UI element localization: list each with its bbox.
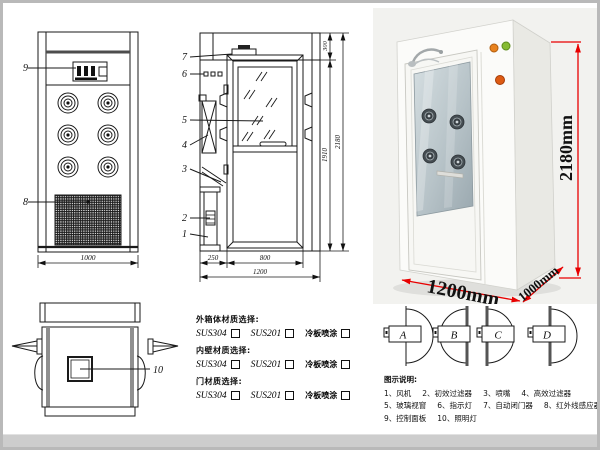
- legend-item: 10、照明灯: [437, 413, 477, 426]
- page-bottom-bar: [0, 434, 600, 450]
- glass-hatching: [242, 72, 277, 141]
- checkbox[interactable]: [341, 360, 350, 369]
- checkbox[interactable]: [231, 360, 240, 369]
- legend-item: 1、风机: [384, 388, 411, 401]
- door-option-b[interactable]: B: [433, 306, 470, 366]
- svg-text:D: D: [542, 330, 551, 342]
- top-body-outline: [42, 327, 138, 407]
- material-group-title: 外箱体材质选择:: [196, 314, 374, 325]
- product-photo: 2180mm 1200mm 1000mm: [373, 8, 597, 304]
- material-option-label: SUS304: [196, 329, 227, 339]
- checkbox[interactable]: [285, 329, 294, 338]
- legend-row: 5、玻璃视窗 6、指示灯 7、自动闭门器 8、红外线感应器: [384, 400, 596, 413]
- material-option-label: SUS304: [196, 360, 227, 370]
- legend-item: 8、红外线感应器: [544, 400, 600, 413]
- svg-text:2180: 2180: [334, 135, 342, 150]
- legend-item: 7、自动闭门器: [483, 400, 533, 413]
- svg-text:1200: 1200: [253, 268, 268, 276]
- door-handle: [260, 142, 286, 146]
- svg-text:B: B: [451, 330, 458, 342]
- door-swing-options: A B C D: [383, 303, 595, 369]
- svg-text:2: 2: [182, 213, 187, 224]
- svg-text:1000: 1000: [81, 253, 96, 262]
- photo-illustration: 2180mm 1200mm 1000mm: [373, 8, 597, 304]
- checkbox[interactable]: [285, 391, 294, 400]
- front-nozzles: [58, 93, 118, 177]
- material-option-label: SUS201: [251, 360, 282, 370]
- svg-text:3: 3: [181, 164, 187, 175]
- legend-item: 4、高效过滤器: [521, 388, 571, 401]
- material-option-label: SUS304: [196, 391, 227, 401]
- checkbox[interactable]: [285, 360, 294, 369]
- air-chute: [202, 167, 226, 186]
- material-group: 门材质选择: SUS304 SUS201 冷板喷涂: [196, 376, 374, 401]
- material-option-label: 冷板喷涂: [305, 328, 337, 339]
- checkbox[interactable]: [341, 329, 350, 338]
- door-option-d[interactable]: D: [528, 306, 577, 366]
- indicator-lights: [204, 72, 222, 76]
- hepa-filter-box: [199, 95, 216, 153]
- material-option-label: 冷板喷涂: [305, 359, 337, 370]
- side-view-drawing: 7 6 5 4 3 2 1 300 1910 2180: [168, 15, 363, 293]
- legend: 图示说明: 1、风机 2、初效过滤器 3、喷嘴 4、高效过滤器 5、玻璃视窗 6…: [384, 374, 596, 425]
- material-group: 内壁材质选择: SUS304 SUS201 冷板喷涂: [196, 345, 374, 370]
- svg-text:10: 10: [153, 365, 163, 376]
- material-option-label: 冷板喷涂: [305, 390, 337, 401]
- svg-text:4: 4: [182, 140, 187, 151]
- front-view-drawing: 9 8 1000: [15, 15, 165, 273]
- door-closer: [232, 49, 256, 55]
- air-shower-spec-sheet: 9 8 1000: [0, 0, 600, 450]
- control-panel: [73, 62, 107, 81]
- svg-text:9: 9: [23, 63, 28, 74]
- door-option-a[interactable]: A: [384, 306, 433, 366]
- legend-item: 3、喷嘴: [483, 388, 510, 401]
- checkbox[interactable]: [341, 391, 350, 400]
- front-width-dimension: 1000: [38, 253, 138, 268]
- material-option-label: SUS201: [251, 329, 282, 339]
- door-option-c[interactable]: C: [477, 306, 514, 366]
- side-cabinet-outline: [200, 33, 320, 251]
- svg-text:1910: 1910: [321, 148, 329, 163]
- svg-text:7: 7: [182, 52, 188, 63]
- material-selection: 外箱体材质选择: SUS304 SUS201 冷板喷涂 内壁材质选择: SUS3…: [196, 314, 374, 407]
- svg-text:8: 8: [23, 197, 28, 208]
- material-option-label: SUS201: [251, 391, 282, 401]
- legend-item: 2、初效过滤器: [422, 388, 472, 401]
- side-nozzle-cones: [220, 93, 312, 141]
- legend-item: 9、控制面板: [384, 413, 426, 426]
- legend-title: 图示说明:: [384, 374, 596, 387]
- svg-text:A: A: [399, 330, 407, 342]
- cabinet-side-face: [513, 20, 555, 290]
- checkbox[interactable]: [231, 329, 240, 338]
- material-group: 外箱体材质选择: SUS304 SUS201 冷板喷涂: [196, 314, 374, 339]
- svg-text:1: 1: [182, 229, 187, 240]
- side-width-dimensions: 250 800 1200: [200, 248, 320, 282]
- legend-item: 5、玻璃视窗: [384, 400, 426, 413]
- fan-filter-column: [200, 187, 220, 251]
- top-view-drawing: 10: [10, 295, 182, 430]
- side-height-dimensions: 300 1910 2180: [320, 33, 349, 251]
- svg-text:5: 5: [182, 115, 187, 126]
- checkbox[interactable]: [231, 391, 240, 400]
- svg-text:250: 250: [208, 254, 219, 262]
- svg-text:300: 300: [322, 40, 329, 52]
- legend-item: 6、指示灯: [437, 400, 472, 413]
- callout-9: 9: [23, 63, 76, 74]
- svg-text:C: C: [494, 330, 502, 342]
- material-group-title: 门材质选择:: [196, 376, 374, 387]
- svg-text:800: 800: [260, 254, 271, 262]
- side-door: [224, 45, 303, 248]
- legend-row: 9、控制面板 10、照明灯: [384, 413, 596, 426]
- photo-height-label: 2180mm: [556, 115, 576, 181]
- legend-row: 1、风机 2、初效过滤器 3、喷嘴 4、高效过滤器: [384, 388, 596, 401]
- svg-text:6: 6: [182, 69, 187, 80]
- left-fittings: [12, 339, 43, 390]
- material-group-title: 内壁材质选择:: [196, 345, 374, 356]
